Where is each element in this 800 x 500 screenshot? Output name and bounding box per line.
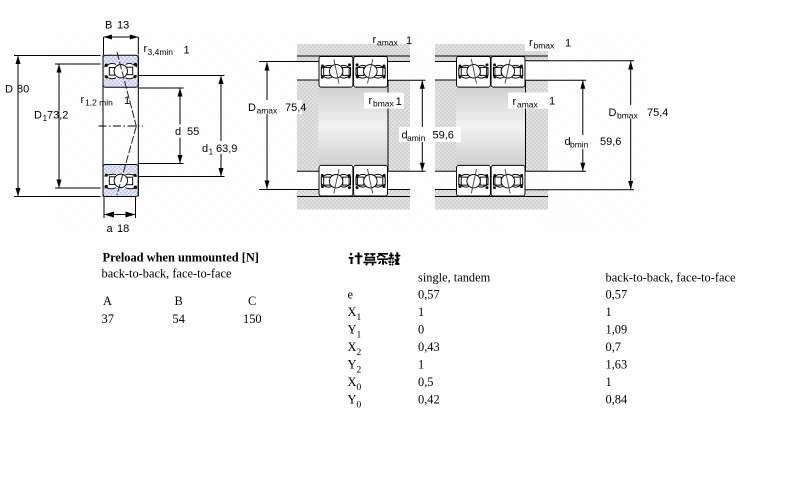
svg-text:D: D bbox=[34, 110, 42, 122]
svg-text:r: r bbox=[369, 95, 373, 107]
svg-text:55: 55 bbox=[187, 126, 199, 138]
svg-text:80: 80 bbox=[17, 84, 29, 96]
svg-text:1: 1 bbox=[184, 45, 190, 57]
svg-text:0,57: 0,57 bbox=[418, 288, 440, 302]
svg-text:1: 1 bbox=[406, 35, 412, 47]
svg-text:Y: Y bbox=[348, 358, 357, 372]
svg-text:1,63: 1,63 bbox=[606, 358, 628, 372]
svg-text:bmax: bmax bbox=[617, 111, 639, 121]
svg-text:1: 1 bbox=[418, 305, 424, 319]
svg-text:0,43: 0,43 bbox=[418, 340, 440, 354]
svg-text:3,4min: 3,4min bbox=[148, 47, 174, 57]
svg-text:B: B bbox=[175, 294, 183, 308]
svg-text:13: 13 bbox=[117, 20, 129, 32]
svg-text:d: d bbox=[175, 126, 181, 138]
svg-text:e: e bbox=[348, 288, 354, 302]
svg-text:73,2: 73,2 bbox=[47, 110, 68, 122]
svg-text:0,57: 0,57 bbox=[606, 288, 628, 302]
svg-text:back-to-back, face-to-face: back-to-back, face-to-face bbox=[102, 267, 233, 281]
svg-text:1: 1 bbox=[565, 38, 571, 50]
svg-text:0,42: 0,42 bbox=[418, 393, 440, 407]
svg-text:54: 54 bbox=[173, 312, 185, 326]
svg-text:single, tandem: single, tandem bbox=[418, 271, 491, 285]
svg-text:r: r bbox=[81, 94, 85, 106]
svg-text:1: 1 bbox=[549, 96, 555, 108]
svg-text:0: 0 bbox=[357, 401, 362, 411]
svg-text:150: 150 bbox=[243, 312, 262, 326]
svg-text:0: 0 bbox=[418, 323, 424, 337]
svg-text:1: 1 bbox=[606, 375, 612, 389]
svg-text:1: 1 bbox=[418, 358, 424, 372]
svg-text:59,6: 59,6 bbox=[433, 130, 454, 142]
svg-text:X: X bbox=[348, 305, 357, 319]
svg-text:75,4: 75,4 bbox=[285, 102, 306, 114]
svg-text:D: D bbox=[5, 84, 13, 96]
svg-text:r: r bbox=[529, 37, 533, 49]
svg-text:bmax: bmax bbox=[373, 99, 395, 109]
svg-text:63,9: 63,9 bbox=[216, 143, 237, 155]
svg-text:amax: amax bbox=[377, 38, 399, 48]
svg-text:X: X bbox=[348, 340, 357, 354]
svg-text:1: 1 bbox=[396, 96, 402, 108]
svg-text:amax: amax bbox=[257, 106, 279, 116]
svg-text:bmax: bmax bbox=[534, 41, 556, 51]
svg-text:Y: Y bbox=[348, 323, 357, 337]
svg-text:1: 1 bbox=[124, 95, 130, 107]
svg-text:B: B bbox=[105, 20, 112, 32]
svg-text:0,5: 0,5 bbox=[418, 375, 434, 389]
svg-text:r: r bbox=[373, 34, 377, 46]
svg-text:A: A bbox=[103, 294, 112, 308]
svg-text:75,4: 75,4 bbox=[647, 107, 668, 119]
svg-text:C: C bbox=[248, 294, 256, 308]
svg-text:X: X bbox=[348, 375, 357, 389]
svg-text:Y: Y bbox=[348, 393, 357, 407]
svg-text:59,6: 59,6 bbox=[600, 136, 621, 148]
svg-text:0,84: 0,84 bbox=[606, 393, 628, 407]
svg-text:1: 1 bbox=[357, 313, 362, 323]
svg-text:D: D bbox=[248, 102, 256, 114]
svg-text:37: 37 bbox=[102, 312, 114, 326]
svg-text:1: 1 bbox=[209, 147, 214, 157]
svg-text:18: 18 bbox=[117, 223, 129, 235]
svg-text:r: r bbox=[513, 96, 517, 108]
svg-text:1: 1 bbox=[357, 331, 362, 341]
svg-text:d: d bbox=[202, 143, 208, 155]
svg-text:1: 1 bbox=[606, 305, 612, 319]
svg-text:a: a bbox=[107, 223, 114, 235]
svg-text:2: 2 bbox=[357, 366, 362, 376]
svg-text:back-to-back, face-to-face: back-to-back, face-to-face bbox=[606, 271, 737, 285]
svg-text:bmin: bmin bbox=[570, 140, 589, 150]
svg-text:1,2 min: 1,2 min bbox=[85, 98, 113, 108]
svg-text:amin: amin bbox=[407, 133, 426, 143]
svg-text:0,7: 0,7 bbox=[606, 340, 622, 354]
svg-text:2: 2 bbox=[357, 348, 362, 358]
svg-text:0: 0 bbox=[357, 383, 362, 393]
svg-text:Preload when unmounted [N]: Preload when unmounted [N] bbox=[103, 251, 259, 265]
svg-text:amax: amax bbox=[517, 100, 539, 110]
svg-text:D: D bbox=[609, 107, 617, 119]
svg-text:1,09: 1,09 bbox=[606, 323, 628, 337]
